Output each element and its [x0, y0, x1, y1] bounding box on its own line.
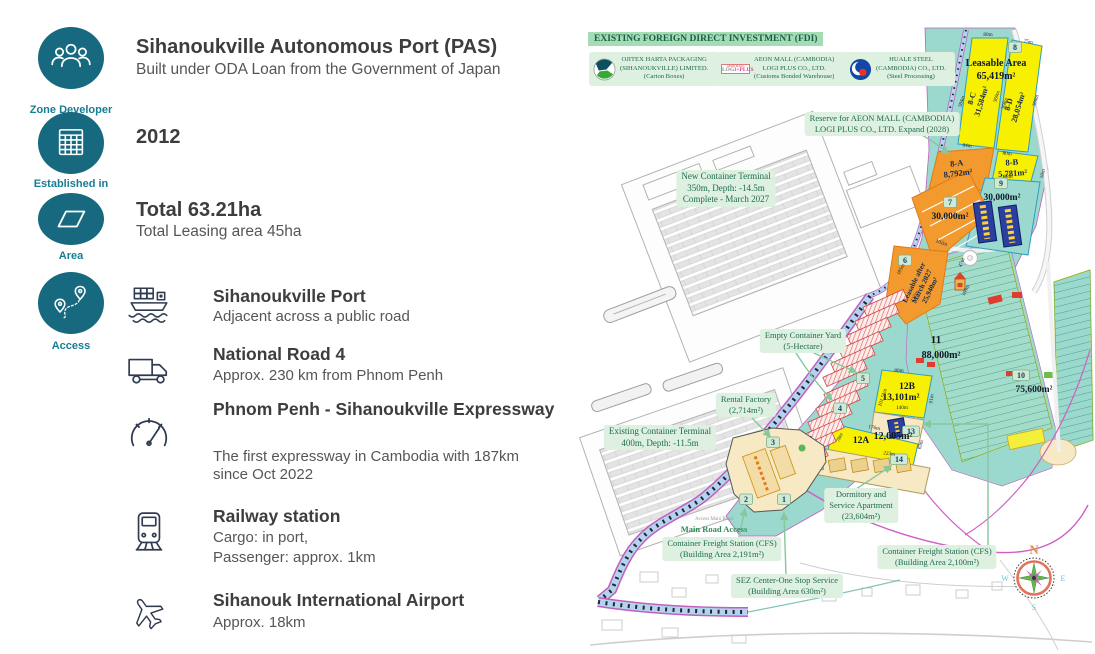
measurement-label: 84m — [962, 143, 972, 150]
zone8b-area: 5,781m² — [998, 167, 1028, 179]
fdi-card-huale: HUALE STEEL (CAMBODIA) CO., LTD. (Steel … — [845, 52, 955, 86]
zone12b-area: 13,101m² — [883, 393, 920, 403]
fdi-company-text: AEON MALL (CAMBODIA) LOGI PLUS CO., LTD.… — [754, 56, 834, 82]
badge-3: 3 — [771, 438, 775, 447]
fdi-card-aeon: AEON MALL LOGI+PLUS AEON MALL (CAMBODIA)… — [717, 52, 849, 86]
logi-plus-logo: AEON MALL LOGI+PLUS — [721, 64, 750, 75]
measurement-label: 80m — [983, 32, 992, 38]
measurement-label: 140m — [896, 405, 908, 411]
fdi-company-text: HUALE STEEL (CAMBODIA) CO., LTD. (Steel … — [876, 56, 946, 82]
compass-n: N — [1029, 542, 1039, 557]
zone8-title: Leasable Area — [966, 58, 1027, 69]
badge-9: 9 — [999, 179, 1003, 188]
label-existing-terminal: Existing Container Terminal400m, Depth: … — [604, 425, 716, 450]
label-reserve-aeon: Reserve for AEON MALL (CAMBODIA)LOGI PLU… — [805, 112, 960, 136]
huale-logo-icon — [849, 58, 872, 81]
badge-8: 8 — [1013, 43, 1017, 52]
badge-2: 2 — [744, 495, 748, 504]
label-cfs-1: Container Freight Station (CFS)(Building… — [662, 537, 781, 561]
badge-4: 4 — [838, 404, 842, 413]
measurement-label: 91m — [929, 394, 936, 404]
compass-s: S — [1032, 603, 1036, 612]
label-sez-center: SEZ Center-One Stop Service(Building Are… — [731, 574, 843, 598]
measurement-label: 88m — [1003, 174, 1012, 180]
badge-6: 6 — [903, 256, 907, 265]
zone11-area: 88,000m² — [922, 350, 961, 361]
measurement-label: 63m — [917, 439, 925, 450]
zone8-area: 65,419m² — [977, 71, 1016, 82]
measurement-label: 80m — [1002, 151, 1012, 158]
label-new-terminal: New Container Terminal350m, Depth: -14.5… — [676, 170, 775, 207]
zone11-id: 11 — [931, 334, 941, 346]
zone12a-area: 12,605m² — [874, 431, 913, 442]
label-rental-factory: Rental Factory(2,714m²) — [716, 393, 776, 417]
ojitex-logo-icon — [593, 58, 616, 81]
badge-7: 7 — [948, 198, 952, 207]
badge-14: 14 — [895, 455, 903, 464]
measurement-label: 80m — [894, 368, 903, 374]
zone8b-id: 8-B — [1005, 157, 1019, 168]
label-dormitory: Dormitory andService Apartment(23,604m²) — [824, 488, 898, 523]
badge-10: 10 — [1017, 371, 1025, 380]
zone12a-id: 12A — [853, 436, 870, 446]
badge-5: 5 — [861, 374, 865, 383]
compass-w: W — [1001, 574, 1009, 583]
label-main-road-access: Main Road Access — [681, 524, 748, 534]
badge-1: 1 — [782, 495, 786, 504]
zone7-area: 30,000m² — [932, 212, 969, 222]
fdi-company-text: OJITEX HARTA PACKAGING (SIHANOUKVILLE) L… — [620, 56, 708, 82]
zone9-area: 30,000m² — [984, 193, 1021, 203]
slide-canvas: Zone Developer Established in Area Acces… — [0, 0, 1095, 654]
fdi-title: EXISTING FOREIGN DIRECT INVESTMENT (FDI) — [588, 32, 823, 46]
fdi-card-ojitex: OJITEX HARTA PACKAGING (SIHANOUKVILLE) L… — [589, 52, 719, 86]
label-empty-yard: Empty Container Yard(5-Hectare) — [760, 329, 846, 353]
compass-e: E — [1061, 574, 1066, 583]
zone12b-id: 12B — [899, 382, 916, 392]
label-access-main-road: Access Main Road — [695, 517, 733, 522]
zone10-area: 75,600m² — [1016, 385, 1053, 395]
label-cfs-2: Container Freight Station (CFS)(Building… — [877, 545, 996, 569]
